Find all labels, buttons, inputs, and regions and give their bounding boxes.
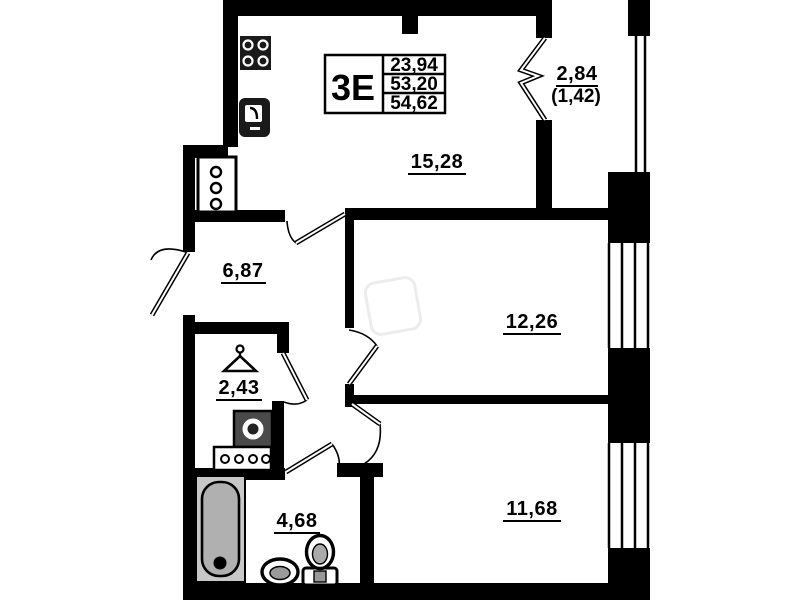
kitchen-door-swing [287,214,345,243]
area-label-bedroom-bottom: 11,68 [506,498,557,520]
watermark [364,276,422,336]
wash-basin-icon [262,559,298,585]
area-label-bedroom-mid: 12,26 [506,311,559,333]
bedroom-bottom-door-swing [352,404,380,464]
window-bedroom-mid [609,243,648,348]
wardrobe-door-swing [283,353,307,404]
unit-area-value-1: 23,94 [390,55,438,76]
area-label-hallway: 6,87 [223,260,264,282]
toilet-icon [303,536,337,586]
area-label-balcony: 2,84 [557,63,598,85]
unit-area-value-2: 53,20 [390,74,438,95]
accordion-balcony-door-icon [521,38,545,120]
area-label-bathroom: 4,68 [277,510,318,532]
bathroom-door-swing [286,444,339,472]
area-label-wardrobe: 2,43 [219,377,260,399]
floor-plan: 3Е 23,94 53,20 54,62 15,28 2,84 (1,42) 6… [0,0,799,600]
stove-icon [240,36,271,70]
floor-plan-canvas: 3Е 23,94 53,20 54,62 15,28 2,84 (1,42) 6… [0,0,799,600]
window-bedroom-bottom [609,443,648,548]
vent-shaft-icon [198,157,236,212]
bathtub-icon [196,476,245,582]
bedroom-mid-door-swing [349,330,377,384]
shoe-cabinet-icon [214,447,271,470]
unit-info-table: 3Е 23,94 53,20 54,62 [325,55,445,114]
area-label-kitchen-living: 15,28 [411,151,464,173]
hanger-icon [224,346,256,372]
unit-area-value-3: 54,62 [390,93,438,114]
washing-machine-icon [234,411,272,447]
kitchen-sink-icon [239,98,270,137]
balcony-window [636,36,645,172]
unit-type-label: 3Е [331,67,375,108]
area-label-balcony-secondary: (1,42) [551,86,601,107]
entry-door-swing [151,249,188,315]
